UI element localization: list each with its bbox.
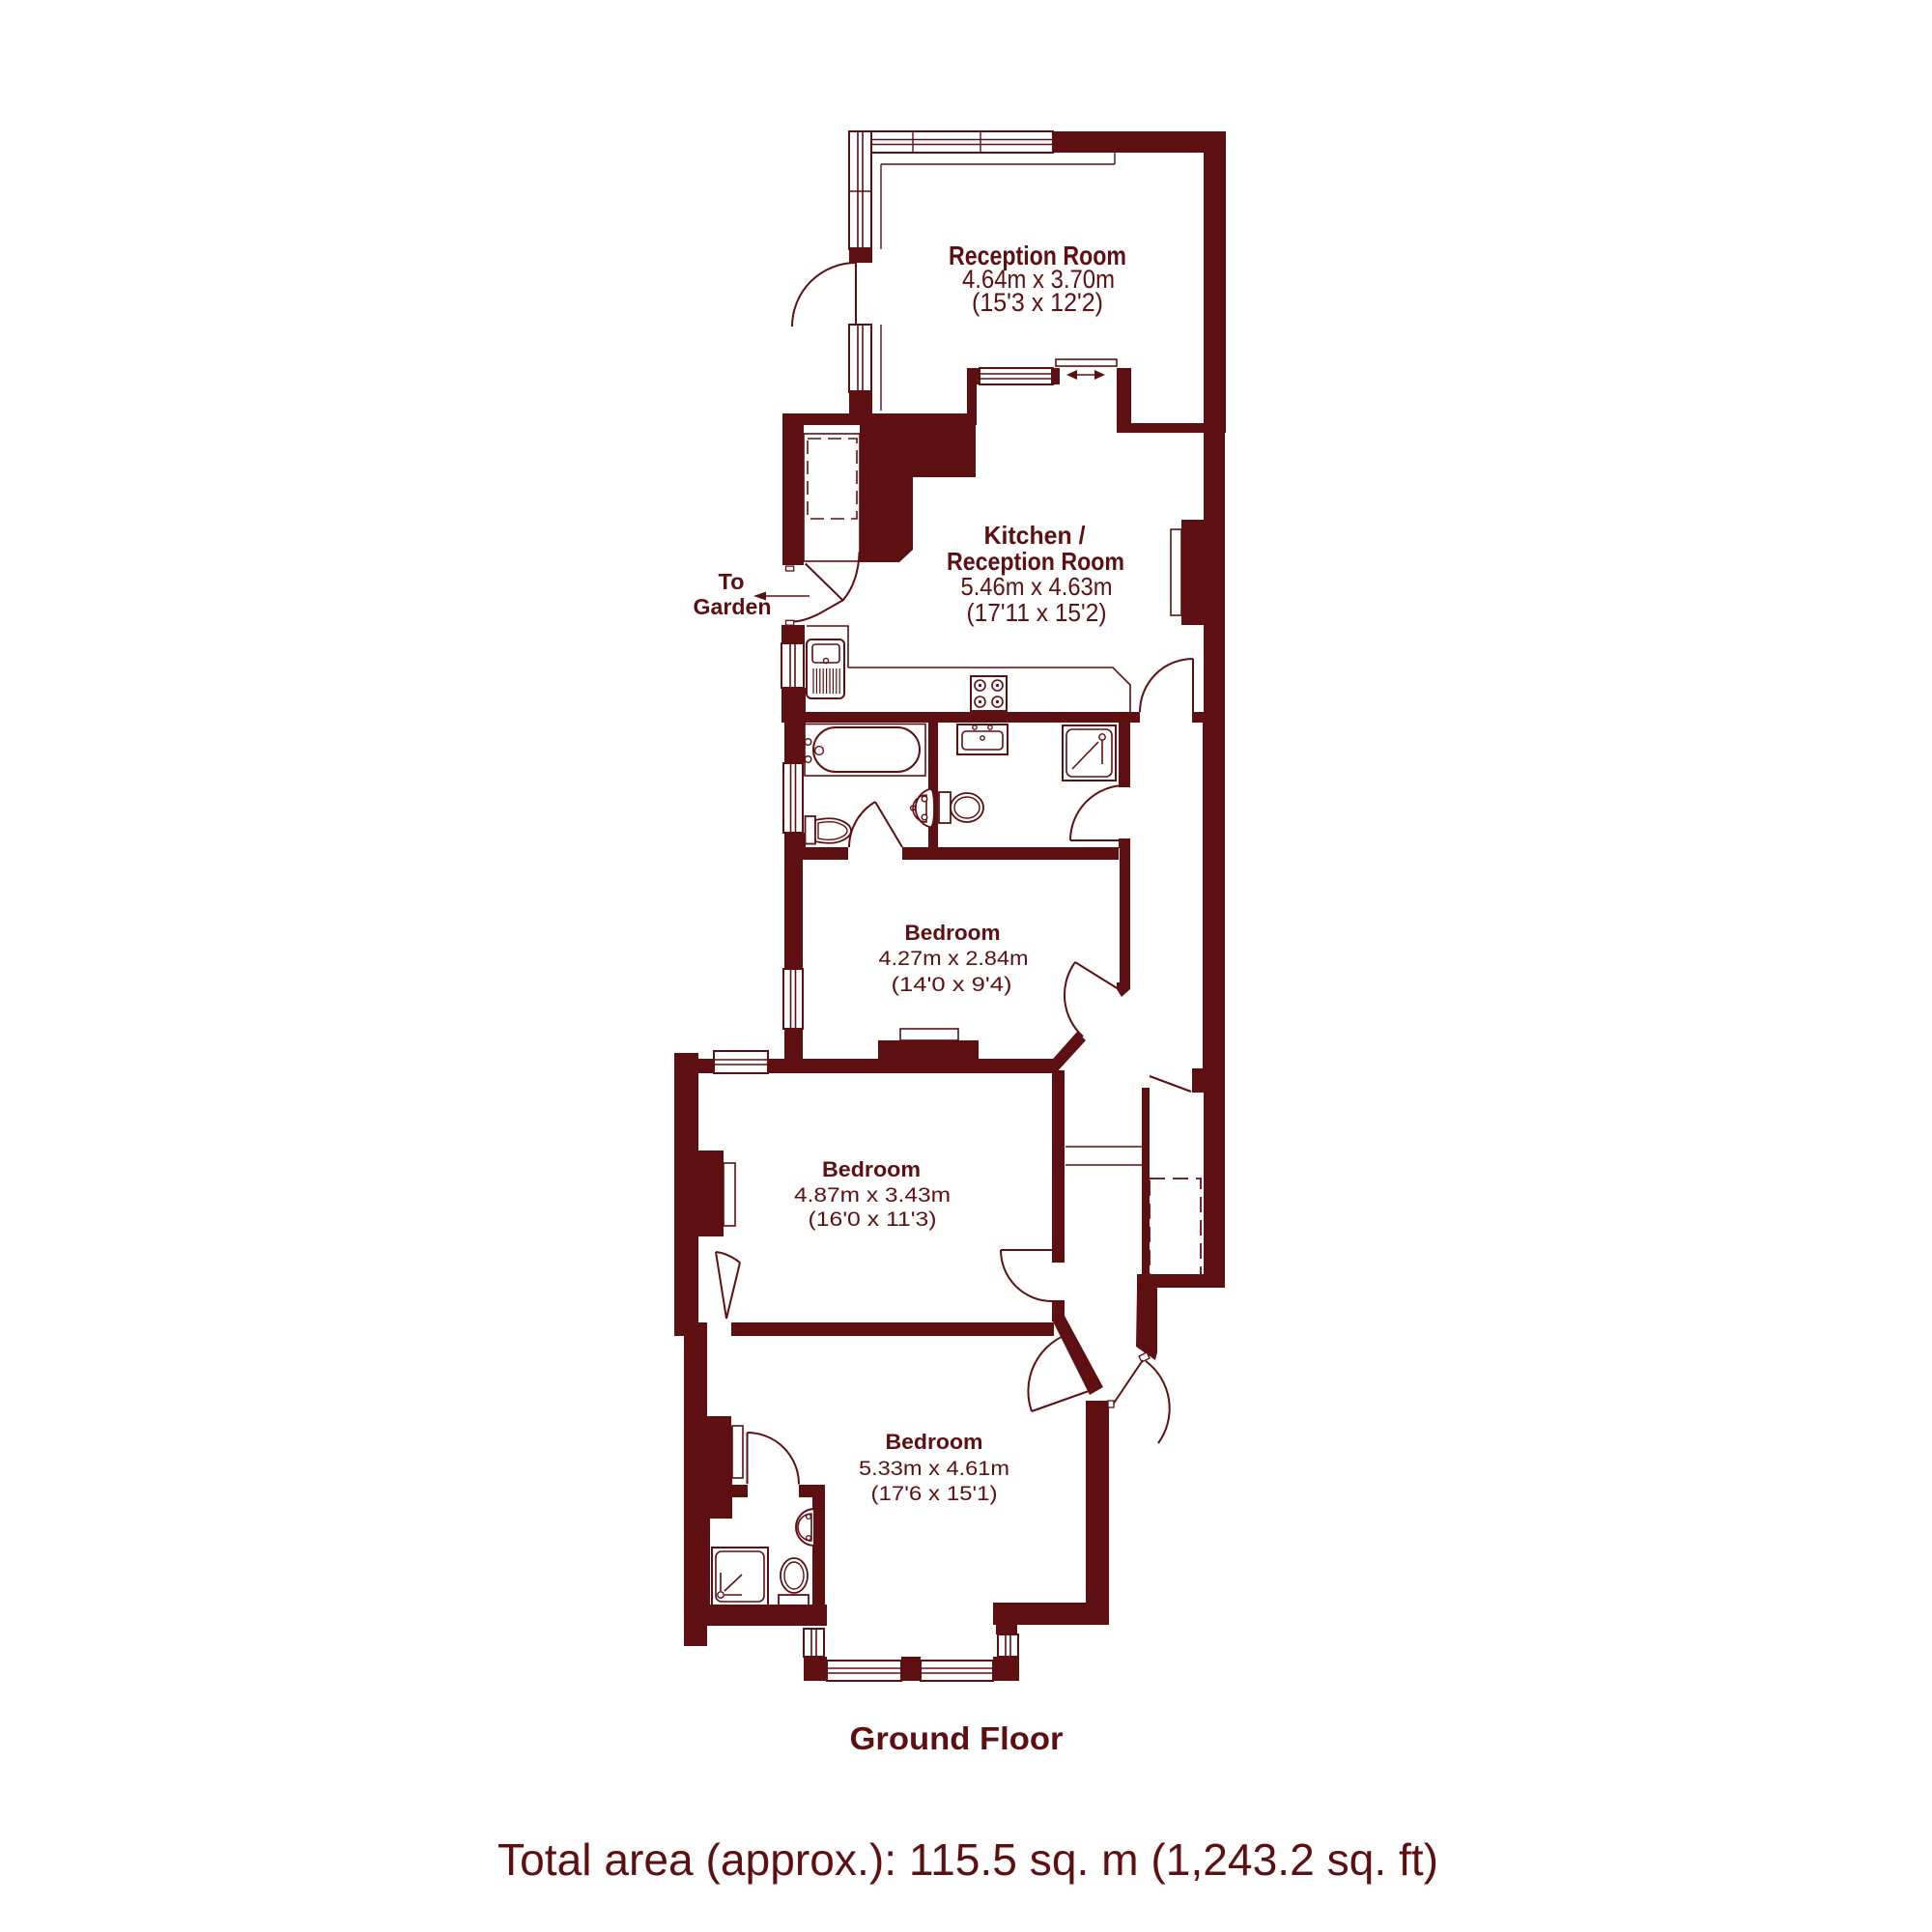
svg-text:4.27m x 2.84m: 4.27m x 2.84m: [879, 948, 1029, 970]
svg-text:Bedroom: Bedroom: [822, 1157, 921, 1181]
svg-text:(14'0 x 9'4): (14'0 x 9'4): [892, 974, 1012, 996]
svg-text:(16'0 x 11'3): (16'0 x 11'3): [809, 1208, 937, 1231]
svg-text:4.87m x 3.43m: 4.87m x 3.43m: [794, 1184, 951, 1207]
svg-text:Bedroom: Bedroom: [886, 1430, 983, 1454]
svg-text:Total area (approx.): 115.5 sq: Total area (approx.): 115.5 sq. m (1,243…: [497, 1834, 1438, 1885]
svg-text:Kitchen /: Kitchen /: [984, 521, 1086, 550]
svg-text:To: To: [719, 569, 745, 594]
svg-text:Bedroom: Bedroom: [905, 921, 1001, 945]
svg-text:(17'11 x 15'2): (17'11 x 15'2): [967, 598, 1107, 627]
svg-text:5.46m x 4.63m: 5.46m x 4.63m: [961, 572, 1113, 601]
svg-text:(17'6 x 15'1): (17'6 x 15'1): [871, 1483, 998, 1505]
svg-text:Ground Floor: Ground Floor: [850, 1720, 1064, 1756]
svg-text:(15'3 x 12'2): (15'3 x 12'2): [972, 288, 1103, 317]
svg-text:5.33m x 4.61m: 5.33m x 4.61m: [859, 1458, 1009, 1480]
